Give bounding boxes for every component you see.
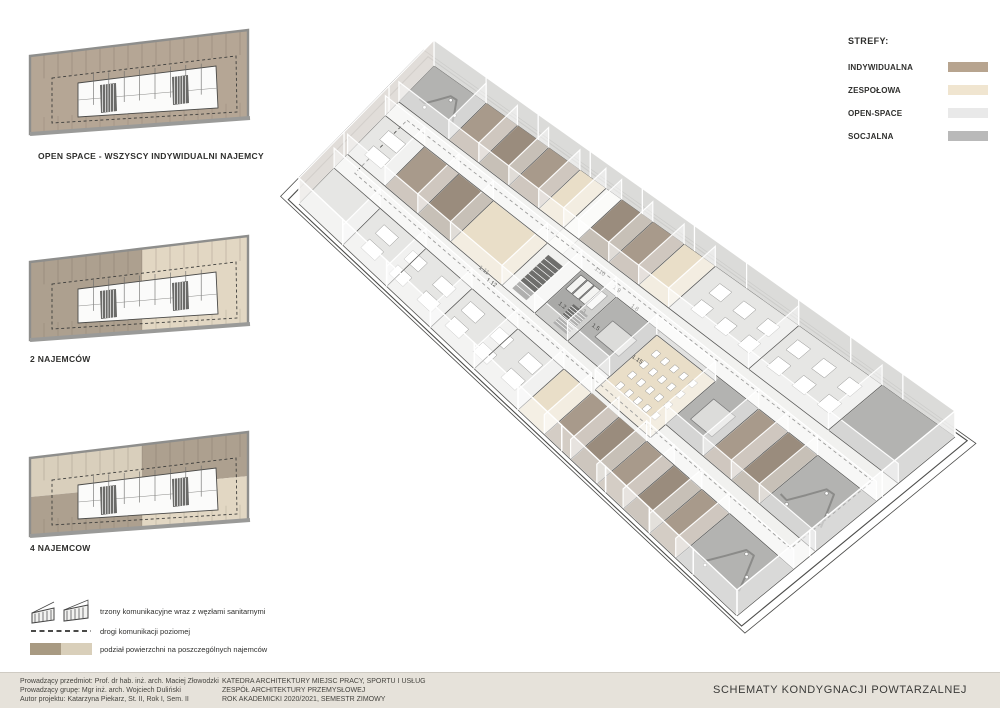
zone-item-indywidualna: INDYWIDUALNA bbox=[848, 62, 988, 72]
tenant-split-swatch bbox=[30, 642, 92, 656]
footer-credit-line: Prowadzący grupę: Mgr inż. arch. Wojciec… bbox=[20, 686, 219, 695]
zone-item-zespolowa: ZESPOŁOWA bbox=[848, 85, 988, 95]
zone-swatch-open-space bbox=[948, 108, 988, 118]
zones-legend-title: STREFY: bbox=[848, 36, 988, 46]
footer-bar: Prowadzący przedmiot: Prof. dr hab. inż.… bbox=[0, 672, 1000, 708]
legend-label-corridors: drogi komunikacji poziomej bbox=[100, 627, 190, 636]
legend-row-tenant-split: podział powierzchni na poszczególnych na… bbox=[30, 641, 267, 657]
zone-label: INDYWIDUALNA bbox=[848, 63, 913, 72]
footer-dept-line: ZESPÓŁ ARCHITEKTURY PRZEMYSŁOWEJ bbox=[222, 686, 426, 695]
footer-credits: Prowadzący przedmiot: Prof. dr hab. inż.… bbox=[20, 677, 219, 704]
zone-swatch-socjalna bbox=[948, 131, 988, 141]
stair-cores-icon bbox=[30, 598, 92, 624]
zone-swatch-zespolowa bbox=[948, 85, 988, 95]
legend-row-corridors: drogi komunikacji poziomej bbox=[30, 624, 190, 638]
legend-row-cores: trzony komunikacyjne wraz z węzłami sani… bbox=[30, 598, 265, 624]
footer-dept-line: KATEDRA ARCHITEKTURY MIEJSC PRACY, SPORT… bbox=[222, 677, 426, 686]
legend-label-tenant-split: podział powierzchni na poszczególnych na… bbox=[100, 645, 267, 654]
footer-dept-line: ROK AKADEMICKI 2020/2021, SEMESTR ZIMOWY bbox=[222, 695, 426, 704]
sheet-title: SCHEMATY KONDYGNACJI POWTARZALNEJ bbox=[700, 684, 980, 696]
footer-department: KATEDRA ARCHITEKTURY MIEJSC PRACY, SPORT… bbox=[222, 677, 426, 704]
footer-credit-line: Prowadzący przedmiot: Prof. dr hab. inż.… bbox=[20, 677, 219, 686]
zone-label: OPEN-SPACE bbox=[848, 109, 902, 118]
zone-swatch-indywidualna bbox=[948, 62, 988, 72]
zone-item-open-space: OPEN-SPACE bbox=[848, 108, 988, 118]
dashed-line-icon bbox=[30, 628, 92, 634]
zone-label: SOCJALNA bbox=[848, 132, 894, 141]
zone-label: ZESPOŁOWA bbox=[848, 86, 901, 95]
zones-legend: STREFY: INDYWIDUALNA ZESPOŁOWA OPEN-SPAC… bbox=[848, 36, 988, 154]
zone-item-socjalna: SOCJALNA bbox=[848, 131, 988, 141]
footer-credit-line: Autor projektu: Katarzyna Piekarz, St. I… bbox=[20, 695, 219, 704]
legend-label-cores: trzony komunikacyjne wraz z węzłami sani… bbox=[100, 607, 265, 616]
